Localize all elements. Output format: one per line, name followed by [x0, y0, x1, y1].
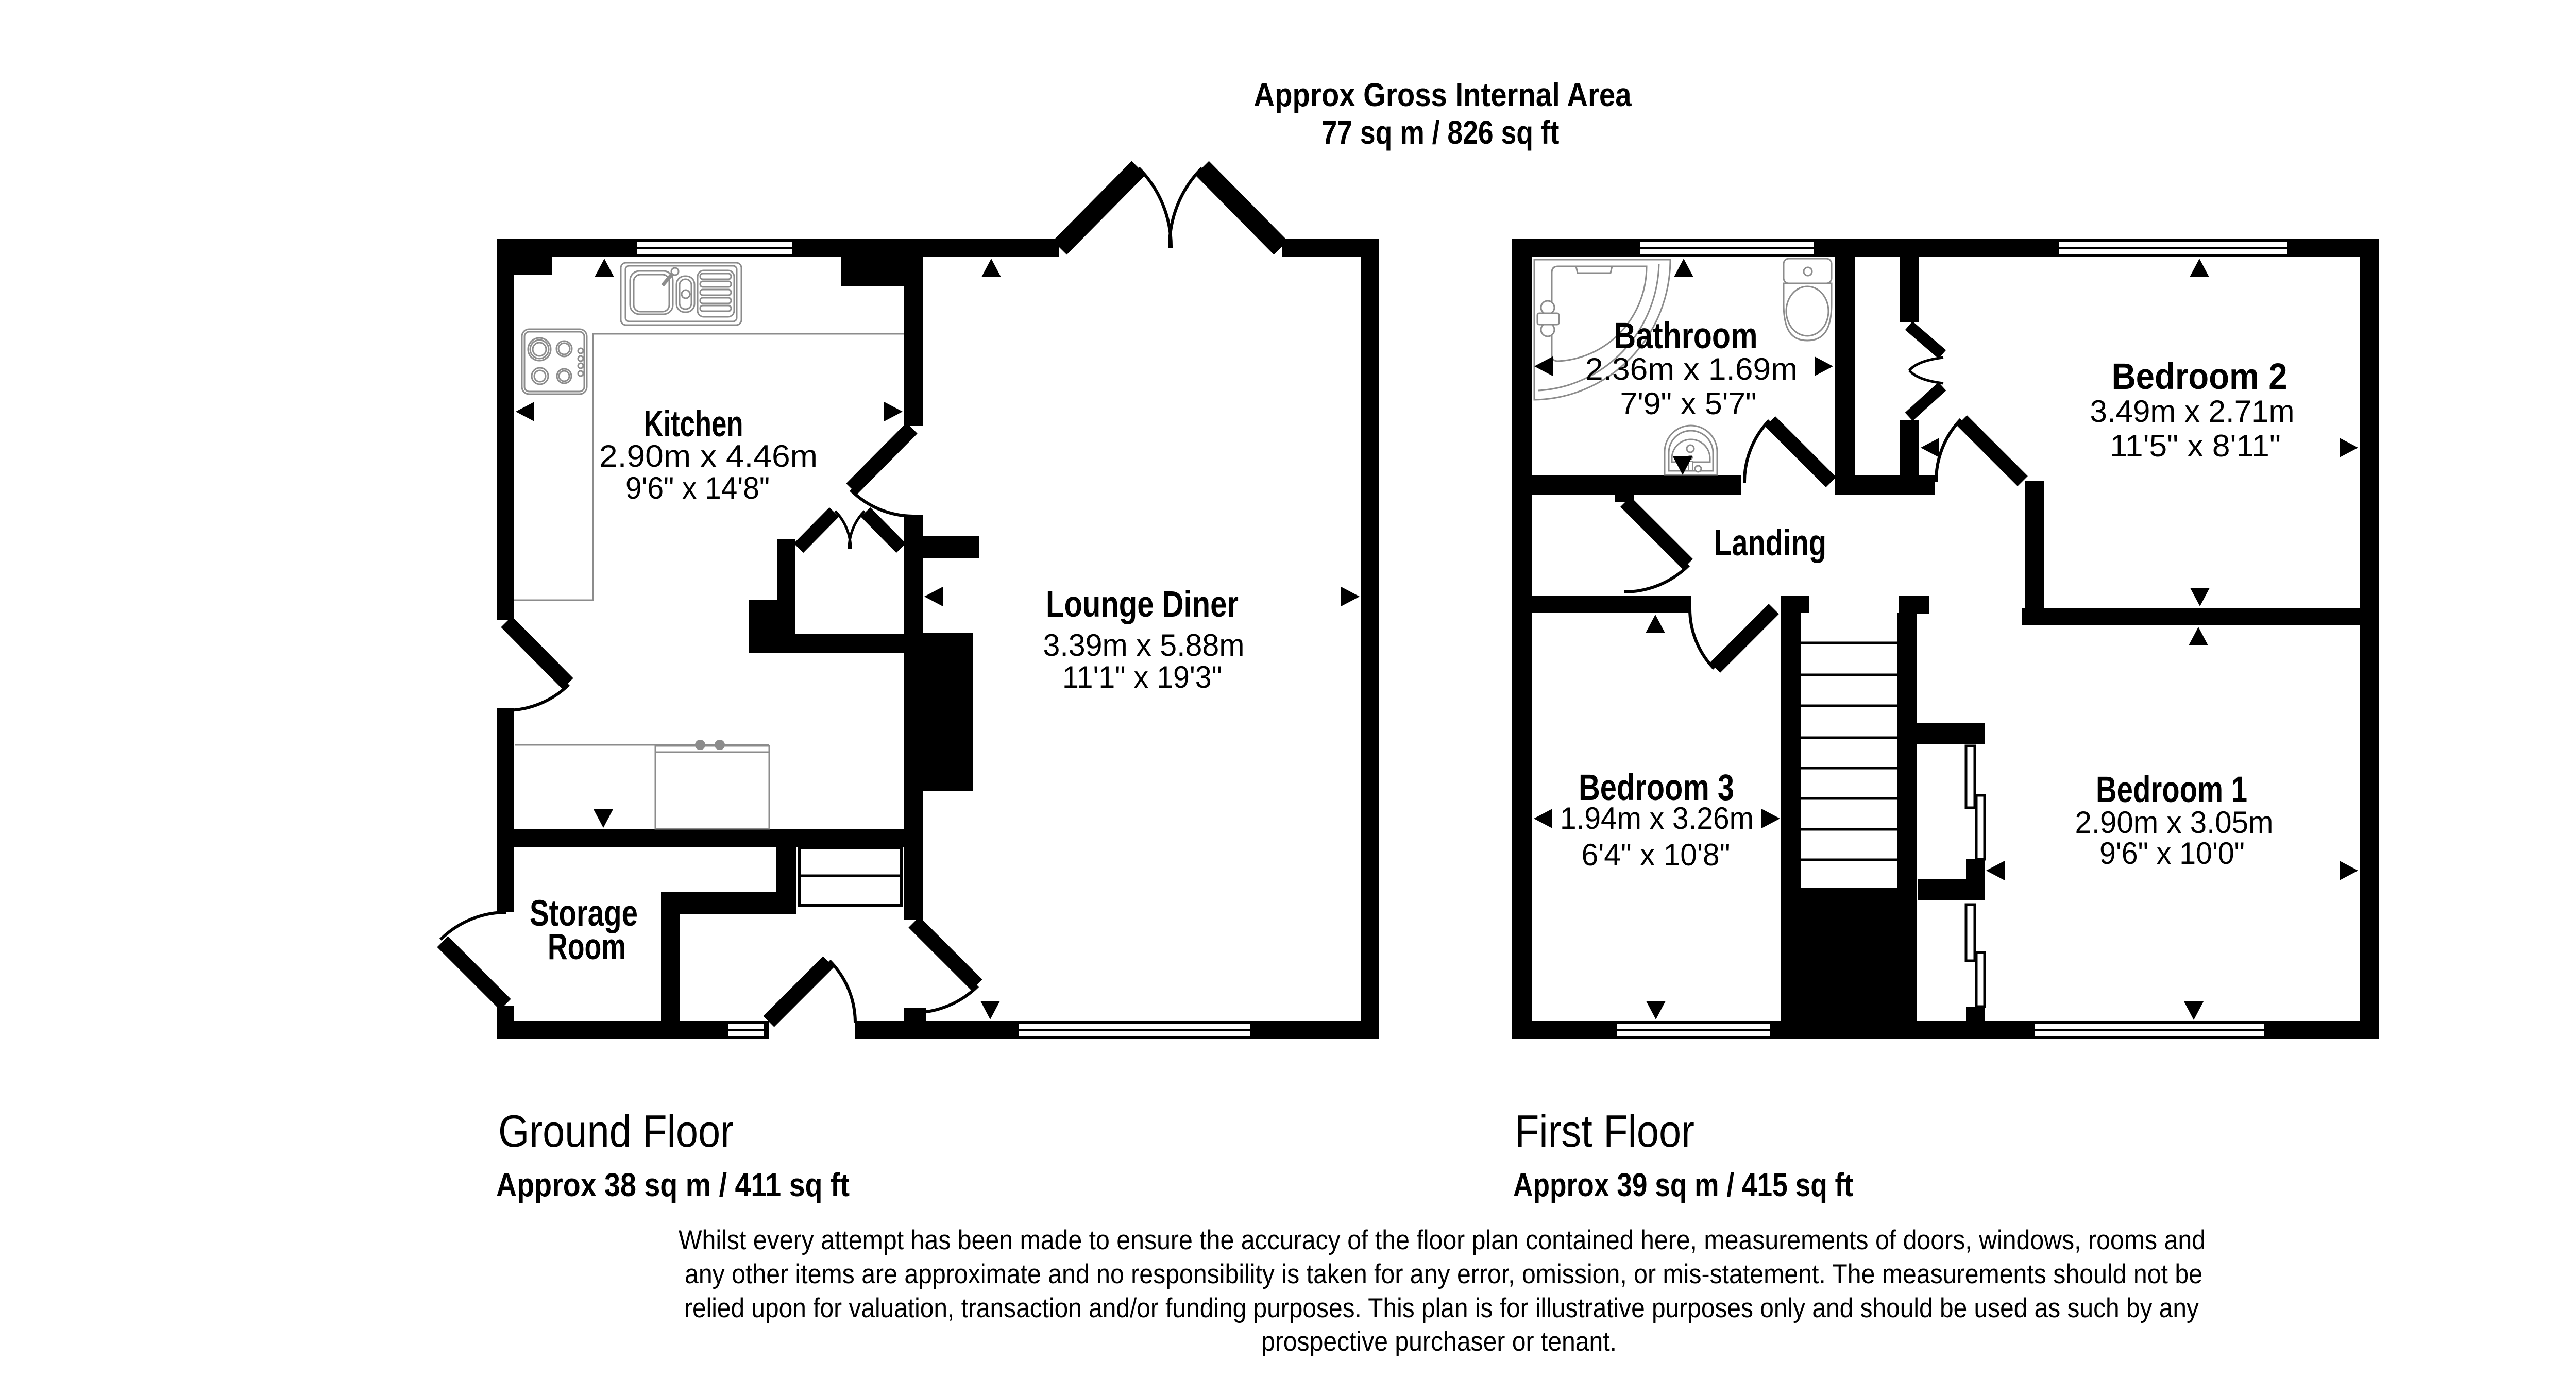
svg-text:relied upon for valuation, tra: relied upon for valuation, transaction a…	[684, 1293, 2199, 1323]
svg-text:Approx Gross Internal Area: Approx Gross Internal Area	[1254, 76, 1632, 113]
svg-text:Landing: Landing	[1714, 523, 1826, 564]
svg-text:prospective purchaser or tenan: prospective purchaser or tenant.	[1261, 1326, 1617, 1357]
svg-text:9'6" x 10'0": 9'6" x 10'0"	[2099, 836, 2245, 871]
svg-text:9'6" x 14'8": 9'6" x 14'8"	[625, 471, 770, 505]
svg-text:3.39m x 5.88m: 3.39m x 5.88m	[1043, 628, 1245, 662]
svg-text:Bathroom: Bathroom	[1614, 316, 1758, 356]
svg-text:First Floor: First Floor	[1515, 1105, 1694, 1156]
svg-text:Approx 38 sq m / 411 sq ft: Approx 38 sq m / 411 sq ft	[496, 1166, 850, 1203]
svg-text:Lounge Diner: Lounge Diner	[1046, 584, 1239, 625]
svg-text:any other items are approximat: any other items are approximate and no r…	[685, 1259, 2202, 1289]
svg-text:6'4" x 10'8": 6'4" x 10'8"	[1582, 838, 1731, 872]
svg-text:2.90m x 3.05m: 2.90m x 3.05m	[2075, 805, 2274, 840]
svg-text:Bedroom 1: Bedroom 1	[2096, 770, 2247, 810]
svg-text:Bedroom 2: Bedroom 2	[2112, 356, 2287, 397]
svg-text:1.94m x 3.26m: 1.94m x 3.26m	[1560, 801, 1754, 836]
svg-text:2.90m x 4.46m: 2.90m x 4.46m	[599, 439, 818, 473]
svg-text:Whilst every attempt has been: Whilst every attempt has been made to en…	[679, 1225, 2206, 1255]
svg-text:11'1" x 19'3": 11'1" x 19'3"	[1062, 660, 1222, 694]
svg-text:3.49m x 2.71m: 3.49m x 2.71m	[2090, 394, 2295, 429]
svg-text:Room: Room	[548, 927, 626, 967]
svg-text:11'5" x 8'11": 11'5" x 8'11"	[2110, 429, 2281, 463]
svg-text:Ground Floor: Ground Floor	[498, 1105, 734, 1156]
svg-text:77 sq m / 826 sq ft: 77 sq m / 826 sq ft	[1322, 114, 1560, 151]
svg-text:2.36m x 1.69m: 2.36m x 1.69m	[1585, 352, 1798, 386]
svg-text:7'9" x 5'7": 7'9" x 5'7"	[1620, 386, 1757, 421]
svg-text:Approx 39 sq m / 415 sq ft: Approx 39 sq m / 415 sq ft	[1513, 1166, 1853, 1203]
